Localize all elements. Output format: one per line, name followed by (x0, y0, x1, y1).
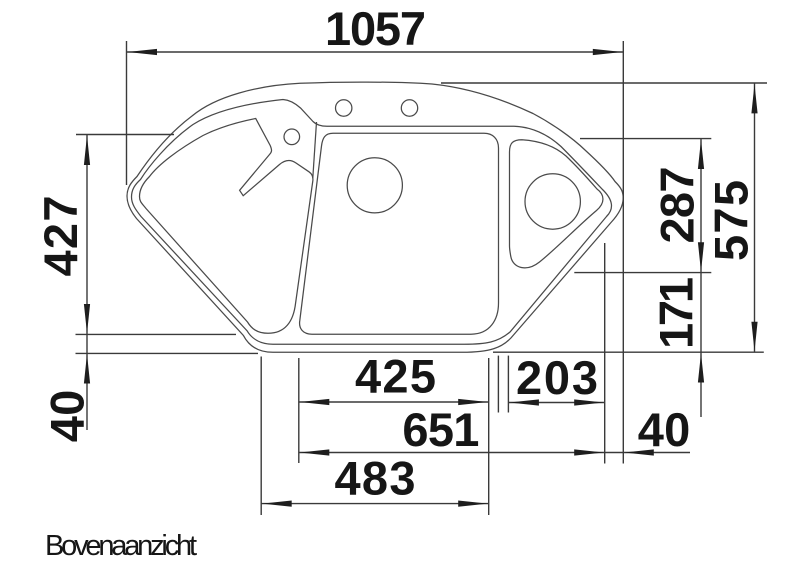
svg-text:651: 651 (402, 403, 479, 456)
svg-text:171: 171 (650, 277, 703, 349)
svg-text:575: 575 (705, 180, 758, 261)
svg-text:427: 427 (34, 196, 87, 277)
svg-text:425: 425 (355, 350, 436, 403)
svg-text:Bovenaanzicht: Bovenaanzicht (45, 530, 197, 562)
svg-text:203: 203 (516, 351, 598, 404)
svg-text:483: 483 (335, 452, 416, 505)
svg-text:1057: 1057 (325, 2, 426, 55)
svg-text:40: 40 (638, 403, 691, 456)
svg-text:287: 287 (651, 167, 704, 244)
svg-text:40: 40 (41, 390, 94, 443)
